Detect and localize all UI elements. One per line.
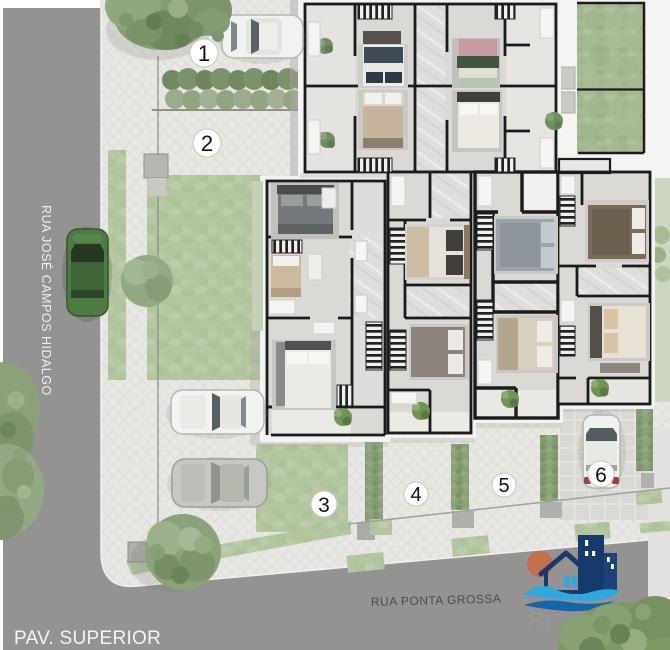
svg-text:4: 4 [410, 484, 421, 506]
svg-text:PAV. SUPERIOR: PAV. SUPERIOR [14, 628, 161, 649]
svg-text:5: 5 [498, 475, 509, 497]
svg-text:1: 1 [198, 41, 210, 66]
svg-text:2: 2 [201, 131, 213, 156]
svg-text:RUA JOSÉ CAMPOS HIDALGO: RUA JOSÉ CAMPOS HIDALGO [39, 205, 54, 396]
svg-text:Fa: Fa [528, 610, 550, 631]
svg-text:3: 3 [318, 494, 330, 517]
svg-text:6: 6 [595, 464, 607, 487]
